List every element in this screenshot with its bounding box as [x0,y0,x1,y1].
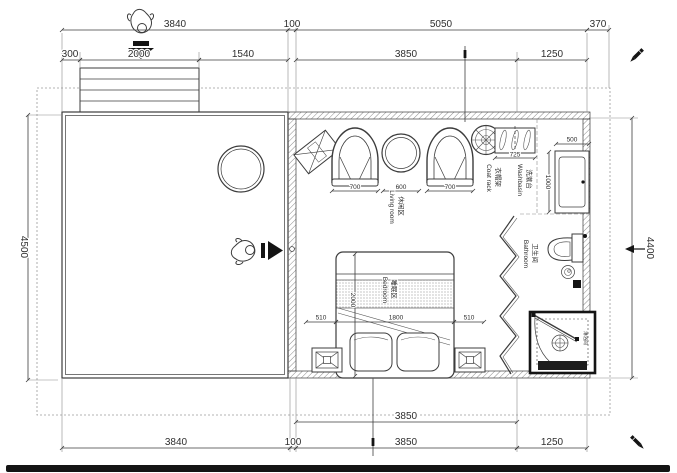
section-marker-bottom [372,378,375,456]
section-marker-top [464,46,467,122]
person-indoor-icon [231,238,254,264]
dim-right-4400: 4400 [644,237,655,260]
pencil-icon-bottom-right [630,435,645,450]
dim-top1-370: 370 [590,19,607,30]
dim-coat-rack: 725 [510,152,521,159]
toilet [548,234,587,262]
dim-top1-3840: 3840 [164,19,187,30]
dim-chair-left: 700 [350,184,361,191]
dim-chair-right: 700 [445,184,456,191]
dim-top2-3850: 3850 [395,49,418,60]
floor-plan-svg: 700 600 700 休闲区 Living room 725 衣帽架 Coat… [0,0,677,473]
dim-washbasin-width: 500 [567,137,578,144]
coat-rack-label: 衣帽架 Coat rack [485,164,503,193]
dim-bottom2-1250: 1250 [541,437,564,448]
dim-bottom2-3840: 3840 [165,437,188,448]
dim-table: 600 [396,184,407,191]
dim-bed-width: 1800 [389,315,404,322]
shower-enclosure: 淋浴间 [530,312,595,373]
entry-arrow-right-icon [261,241,283,260]
washbasin-label: 洗漱台 Washbasin [516,164,534,196]
floor-plan-canvas: 700 600 700 休闲区 Living room 725 衣帽架 Coat… [0,0,677,473]
living-room-label: 休闲区 Living room [388,190,406,224]
floor-drain [562,266,575,279]
pillow-right [397,333,439,371]
dim-bed-clearance-right: 510 [464,315,475,322]
pillow-left [350,333,392,371]
dim-bottom1-3850: 3850 [395,411,418,422]
washbasin [555,151,589,213]
door-knob-marker [290,247,295,252]
person-entry-top-icon [127,9,153,32]
armchair-right [427,128,473,186]
pencil-icon-top-right [629,48,644,63]
shower-label: 淋浴间 [582,331,589,345]
right-mid-marker [625,245,645,253]
nightstand-left [312,348,342,372]
dim-left-4500: 4500 [18,236,29,259]
dim-top2-2000: 2000 [128,49,151,60]
dim-top2-300: 300 [62,49,79,60]
dim-bottom2-3850: 3850 [395,437,418,448]
wall-top-right-unit [288,112,590,119]
dim-bed-clearance-left: 510 [316,315,327,322]
dim-top1-100: 100 [284,19,301,30]
dim-top2-1250: 1250 [541,49,564,60]
side-table [382,134,420,172]
dim-washbasin-depth: 1000 [544,175,551,190]
dim-bottom2-100: 100 [285,437,302,448]
nightstand-right [455,348,485,372]
folding-partition-zigzag [500,216,519,374]
dim-bed-length: 2000 [349,293,356,308]
bathroom-fixture-block [573,280,581,288]
bathroom-label: 卫生间 Bathroom [522,240,540,268]
round-table [218,146,264,192]
entrance-steps [80,68,199,112]
dim-top1-5050: 5050 [430,19,453,30]
shower-drain-grate [538,361,587,370]
dim-top2-1540: 1540 [232,49,255,60]
bottom-black-bar [6,465,670,472]
armchair-left [332,128,378,186]
